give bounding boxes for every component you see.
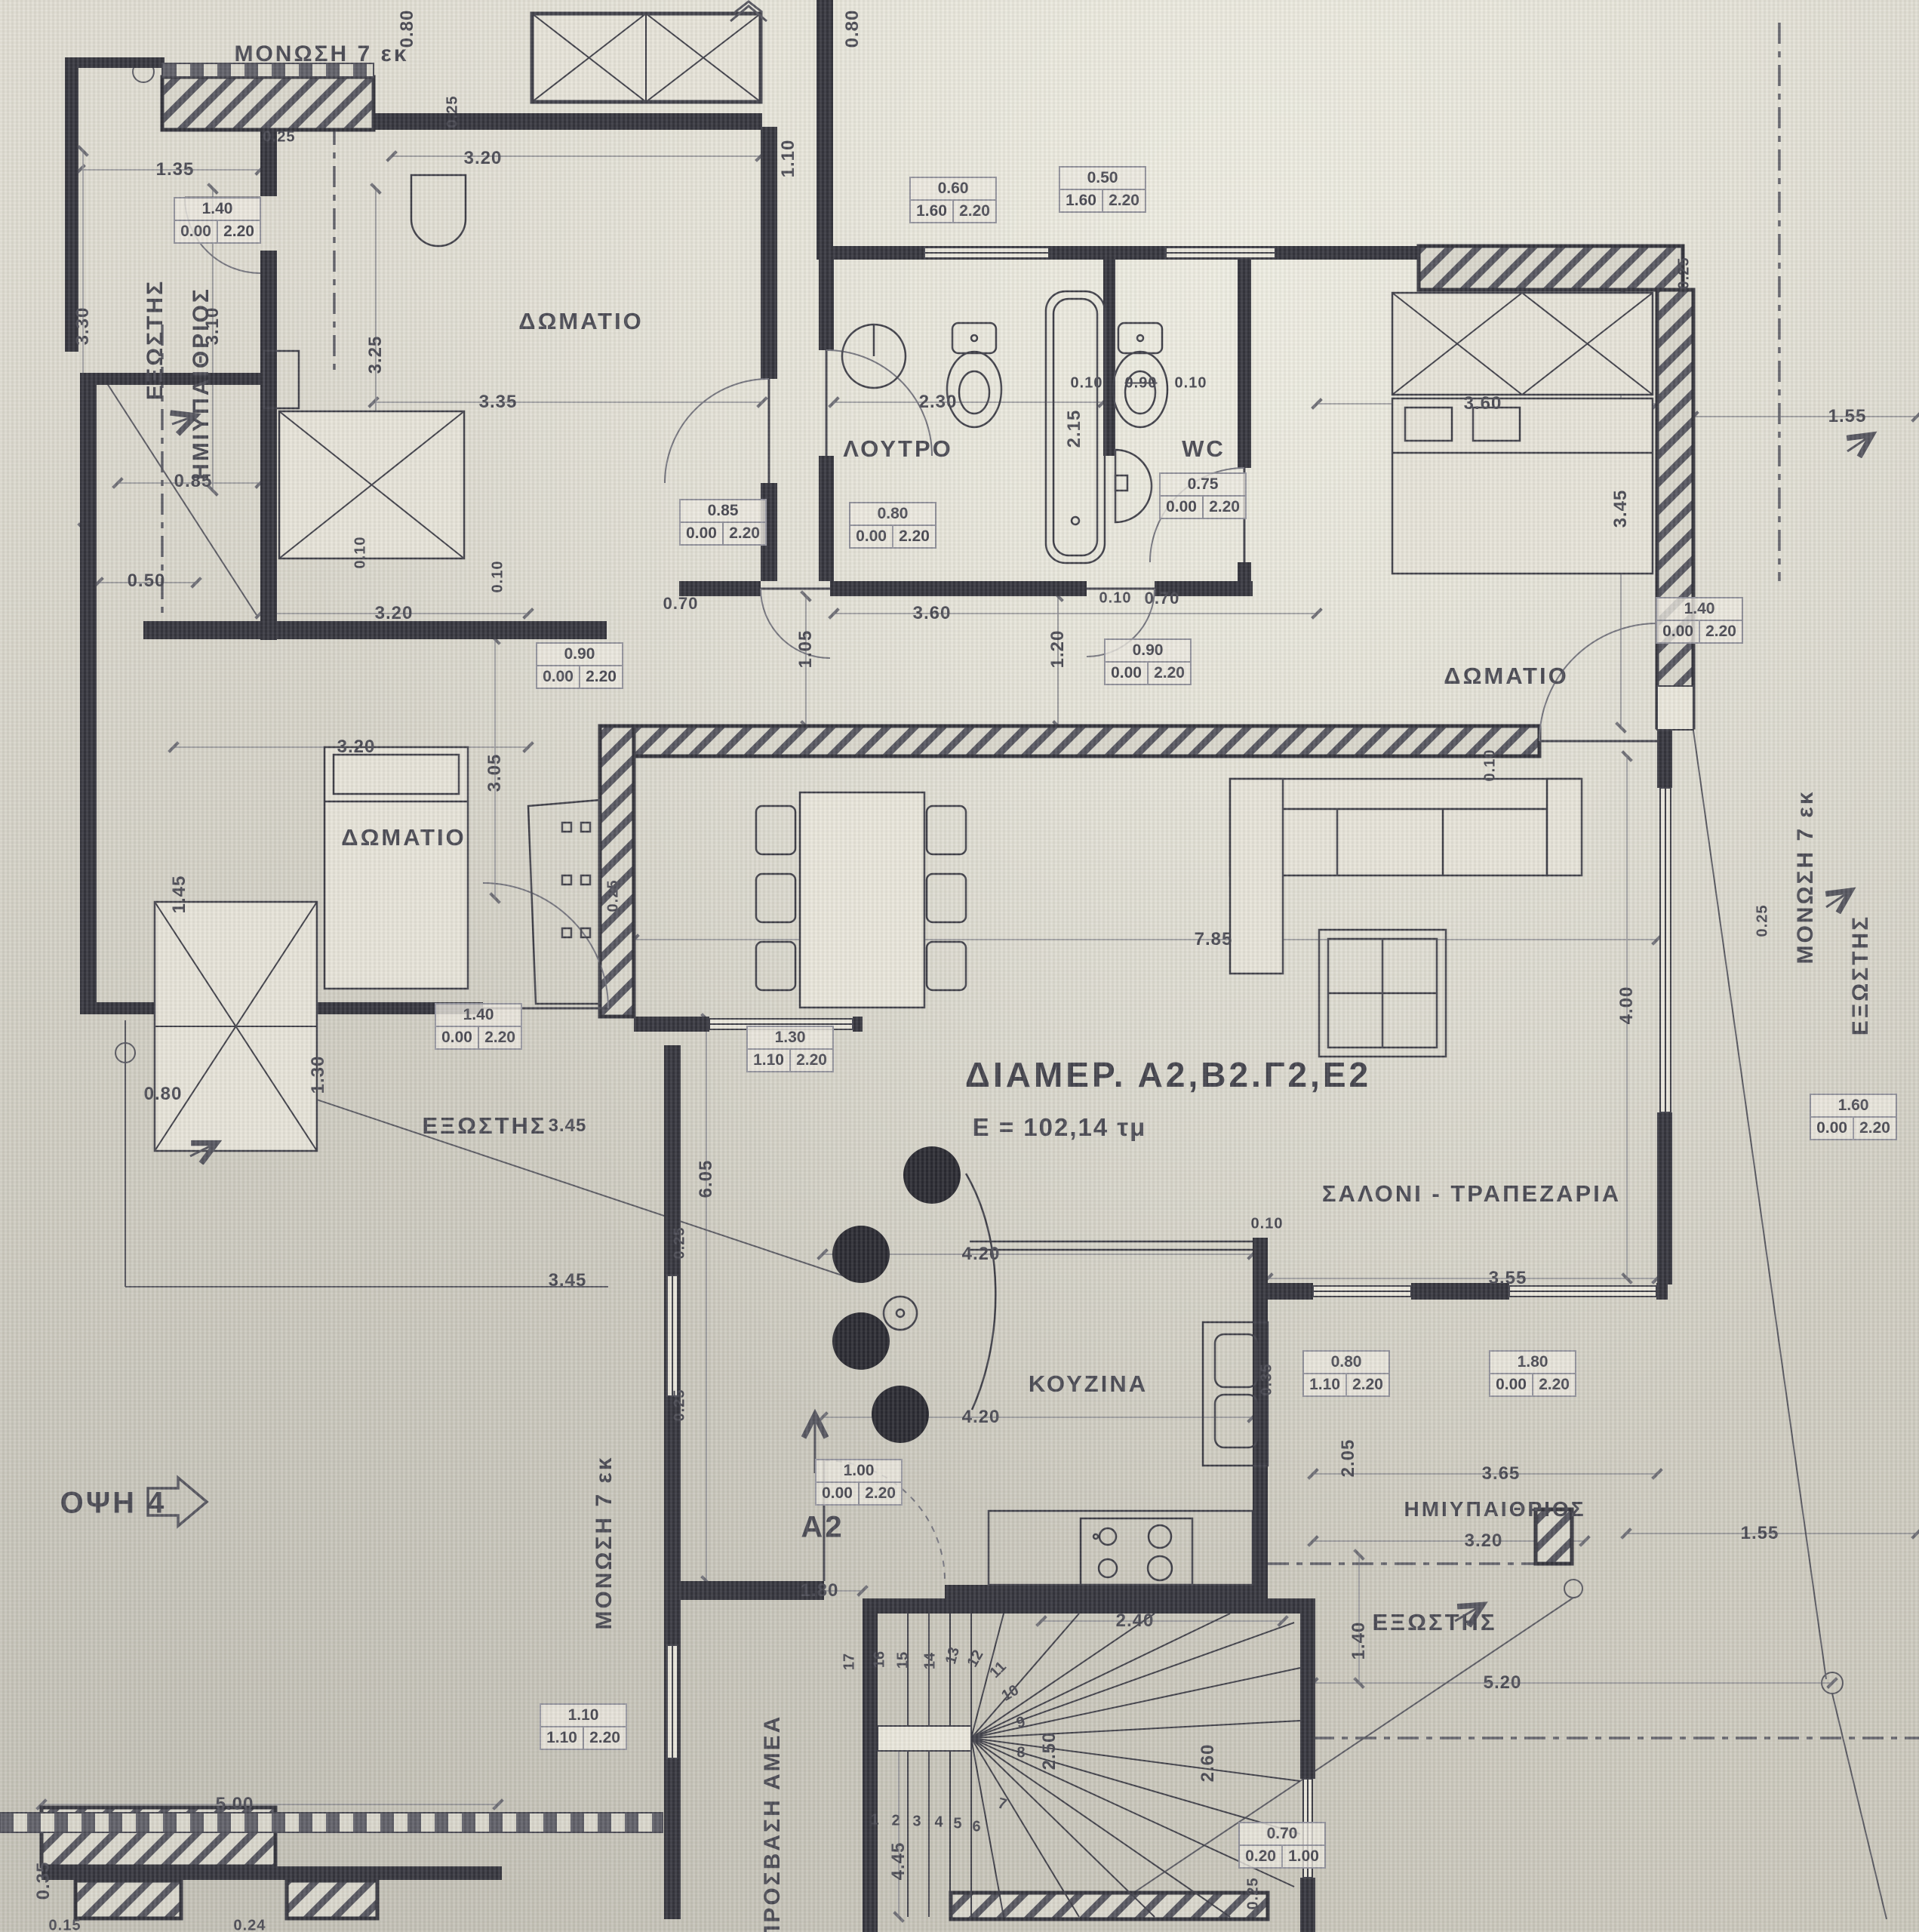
room-label: ΔΩΜΑΤΙΟ (341, 824, 466, 851)
small-arrow-icon (1847, 436, 1870, 451)
dimension-label: 4.00 (1616, 986, 1638, 1025)
bed-right-bedroom (1392, 398, 1653, 574)
bar-stools (832, 1146, 961, 1443)
dimension-label: 0.70 (663, 594, 699, 614)
dimension-label: 0.10 (490, 561, 507, 593)
dimension-label: 3.60 (913, 603, 952, 624)
dimension-label: 0.25 (1754, 905, 1772, 937)
dimension-label: 1.80 (801, 1580, 839, 1601)
room-label: ΔΩΜΑΤΙΟ (1444, 663, 1568, 690)
dimension-label: 3.35 (479, 392, 518, 413)
dimension-label: 0.35 (33, 1862, 54, 1900)
dimension-label: 0.25 (263, 129, 296, 146)
room-label: WC (1182, 435, 1226, 463)
stove (1081, 1518, 1192, 1585)
dimension-label: 0.50 (128, 571, 166, 592)
dimension-label: 0.70 (1145, 589, 1180, 608)
closet-right-bedroom (1392, 293, 1653, 395)
stair-number: 1 (870, 1812, 878, 1829)
toilet-bowl (947, 352, 1001, 427)
dimension-label: 0.25 (444, 96, 462, 128)
opening-schedule-tag: 0.601.602.20 (909, 177, 997, 223)
dimension-label: 2.40 (1116, 1611, 1155, 1632)
stair-number: 15 (895, 1652, 912, 1669)
dimension-label: 3.65 (1482, 1463, 1521, 1484)
stair-fan-treads (971, 1614, 1300, 1917)
stair-number: 3 (912, 1814, 921, 1831)
annotation-label: ΕΞΩΣΤΗΣ (1848, 915, 1874, 1035)
dimension-label: 0.25 (672, 1227, 689, 1260)
opening-schedule-tag: 1.400.002.20 (174, 197, 261, 244)
annotation-label: ΜΟΝΩΣΗ 7 εκ (234, 42, 408, 67)
dimension-label: 1.40 (1349, 1622, 1370, 1660)
opening-schedule-tag: 1.000.002.20 (815, 1459, 903, 1506)
closet-top (532, 14, 761, 102)
annotation-label: ΗΜΙΥΠΑΙΘΡΙΟΣ (189, 287, 214, 480)
unit-area: Ε = 102,14 τμ (973, 1113, 1147, 1142)
coffee-table (1319, 930, 1446, 1057)
dimension-label: 0.35 (1259, 1364, 1276, 1396)
dimension-label: 3.20 (337, 737, 376, 758)
stair-number: 5 (953, 1816, 961, 1833)
stair-number: 4 (934, 1814, 943, 1832)
dimension-label: 3.30 (72, 307, 94, 346)
dimension-label: 3.05 (484, 754, 506, 792)
annotation-label: ΜΟΝΩΣΗ 7 εκ (592, 1455, 617, 1629)
dimension-label: 6.05 (696, 1160, 717, 1198)
dimension-label: 1.05 (795, 630, 816, 669)
bar-counter-edge (966, 1174, 995, 1410)
plan-drawing (0, 0, 1919, 1932)
unit-title: ΔΙΑΜΕΡ. Α2,Β2.Γ2,Ε2 (965, 1054, 1371, 1095)
room-label: ΛΟΥΤΡΟ (843, 435, 953, 463)
annotation-label: ΜΟΝΩΣΗ 7 εκ (1793, 789, 1819, 964)
stair-number: 2 (891, 1813, 900, 1830)
opening-schedule-tag: 1.301.102.20 (746, 1026, 834, 1072)
dimension-label: 2.05 (1338, 1439, 1359, 1478)
annotation-label: ΟΨΗ 4 (60, 1487, 167, 1521)
floor-plan: 1.353.200.250.800.250.801.103.303.103.25… (0, 0, 1919, 1932)
dimension-label: 3.45 (549, 1115, 587, 1137)
dimension-label: 3.20 (464, 148, 503, 169)
annotation-label: ΕΞΩΣΤΗΣ (143, 279, 168, 400)
room-label: ΚΟΥΖΙΝΑ (1029, 1371, 1148, 1398)
dimension-label: 0.10 (1099, 590, 1132, 608)
toilet-tank (952, 323, 996, 353)
dimension-label: 0.10 (1175, 375, 1207, 392)
room-label: ΣΑΛΟΝΙ - ΤΡΑΠΕΖΑΡΙΑ (1322, 1180, 1621, 1207)
bed-room2 (324, 747, 468, 989)
dimension-label: 3.45 (549, 1270, 587, 1291)
dimension-label: 3.20 (375, 603, 414, 624)
dimension-label: 1.10 (778, 140, 799, 178)
survey-point-icon (1564, 1580, 1582, 1598)
dimension-label: 0.80 (144, 1084, 183, 1105)
opening-schedule-tag: 0.800.002.20 (849, 502, 936, 549)
dimension-label: 0.10 (352, 537, 370, 569)
dimension-label: 0.90 (1125, 375, 1158, 392)
dining-table (756, 792, 966, 1008)
opening-schedule-tag: 1.400.002.20 (435, 1003, 522, 1050)
wardrobe-room2 (155, 902, 317, 1151)
dimension-label: 0.10 (1251, 1216, 1284, 1233)
room-label: ΕΞΩΣΤΗΣ (1372, 1609, 1496, 1636)
dimension-label: 0.15 (49, 1918, 81, 1932)
dimension-label: 3.25 (365, 336, 386, 374)
dimension-label: 4.20 (962, 1407, 1001, 1428)
stairs (878, 1614, 1300, 1917)
opening-schedule-tag: 0.501.602.20 (1059, 166, 1146, 213)
opening-schedule-tag: 1.400.002.20 (1656, 597, 1743, 644)
sink (1215, 1334, 1257, 1387)
wc-washbasin (1115, 450, 1152, 522)
annotation-label: ΠΡΟΣΒΑΣΗ ΑΜΕΑ (760, 1715, 786, 1932)
dimension-label: 0.10 (1482, 749, 1499, 782)
stool-ring (884, 1297, 917, 1330)
dimension-label: 7.85 (1195, 929, 1233, 950)
dimension-label: 1.45 (169, 875, 190, 914)
dimension-label: 0.25 (1676, 257, 1693, 290)
dimension-label: 1.35 (156, 159, 195, 180)
kitchen-counter (970, 1241, 1268, 1585)
opening-schedule-tag: 0.750.002.20 (1159, 472, 1247, 519)
armchair (411, 175, 466, 246)
stair-number: 14 (922, 1653, 940, 1669)
dimension-label: 3.45 (1610, 490, 1631, 528)
opening-schedule-tag: 1.800.002.20 (1489, 1350, 1576, 1397)
dimension-label: 0.80 (842, 10, 863, 48)
dimension-label: 2.50 (1039, 1732, 1060, 1770)
wardrobe-room1 (279, 411, 464, 558)
dimension-label: 3.55 (1489, 1268, 1527, 1289)
dimension-label: 5.00 (216, 1794, 254, 1815)
dimension-label: 1.30 (308, 1056, 329, 1094)
dimension-label: 1.20 (1047, 630, 1069, 669)
dimension-label: 2.30 (919, 392, 958, 413)
dimension-label: 0.25 (605, 880, 623, 912)
dimension-label: 3.20 (1465, 1531, 1503, 1552)
sink (1215, 1395, 1257, 1447)
opening-schedule-tag: 0.900.002.20 (536, 642, 623, 689)
stair-number: 6 (972, 1819, 980, 1836)
dimension-label: 4.20 (962, 1244, 1001, 1265)
toilet-tank (1118, 323, 1162, 353)
opening-schedule-tag: 0.850.002.20 (679, 499, 767, 546)
annotation-label: Α2 (801, 1511, 844, 1545)
stair-number: 16 (872, 1651, 889, 1668)
dimension-label: 3.60 (1464, 393, 1502, 414)
dimension-label: 2.60 (1198, 1744, 1219, 1783)
opening-schedule-tag: 0.801.102.20 (1302, 1350, 1390, 1397)
stair-number: 17 (841, 1654, 859, 1670)
desk-room2 (528, 800, 600, 1004)
opening-schedule-tag: 0.900.002.20 (1104, 638, 1192, 685)
dimension-label: 0.10 (1071, 375, 1103, 392)
room-label: ΕΞΩΣΤΗΣ (422, 1112, 546, 1140)
small-arrow-icon (1826, 892, 1849, 907)
dimension-label: 2.15 (1064, 410, 1085, 448)
sofa (1230, 779, 1582, 974)
opening-schedule-tag: 1.600.002.20 (1810, 1094, 1897, 1140)
room-label: ΗΜΙΥΠΑΙΘΡΙΟΣ (1404, 1497, 1585, 1521)
dimension-label: 0.24 (234, 1918, 266, 1932)
room-label: ΔΩΜΑΤΙΟ (518, 308, 643, 335)
opening-schedule-tag: 0.700.201.00 (1238, 1822, 1326, 1869)
dimension-label: 0.25 (1245, 1878, 1262, 1910)
dimension-label: 1.55 (1741, 1523, 1779, 1544)
dimension-label: 4.45 (888, 1842, 909, 1881)
opening-schedule-tag: 1.101.102.20 (540, 1703, 627, 1750)
stair-number: 8 (1016, 1745, 1025, 1762)
dimension-label: 0.25 (672, 1389, 689, 1422)
dimension-label: 1.55 (1828, 406, 1867, 427)
dimension-label: 5.20 (1484, 1672, 1522, 1694)
